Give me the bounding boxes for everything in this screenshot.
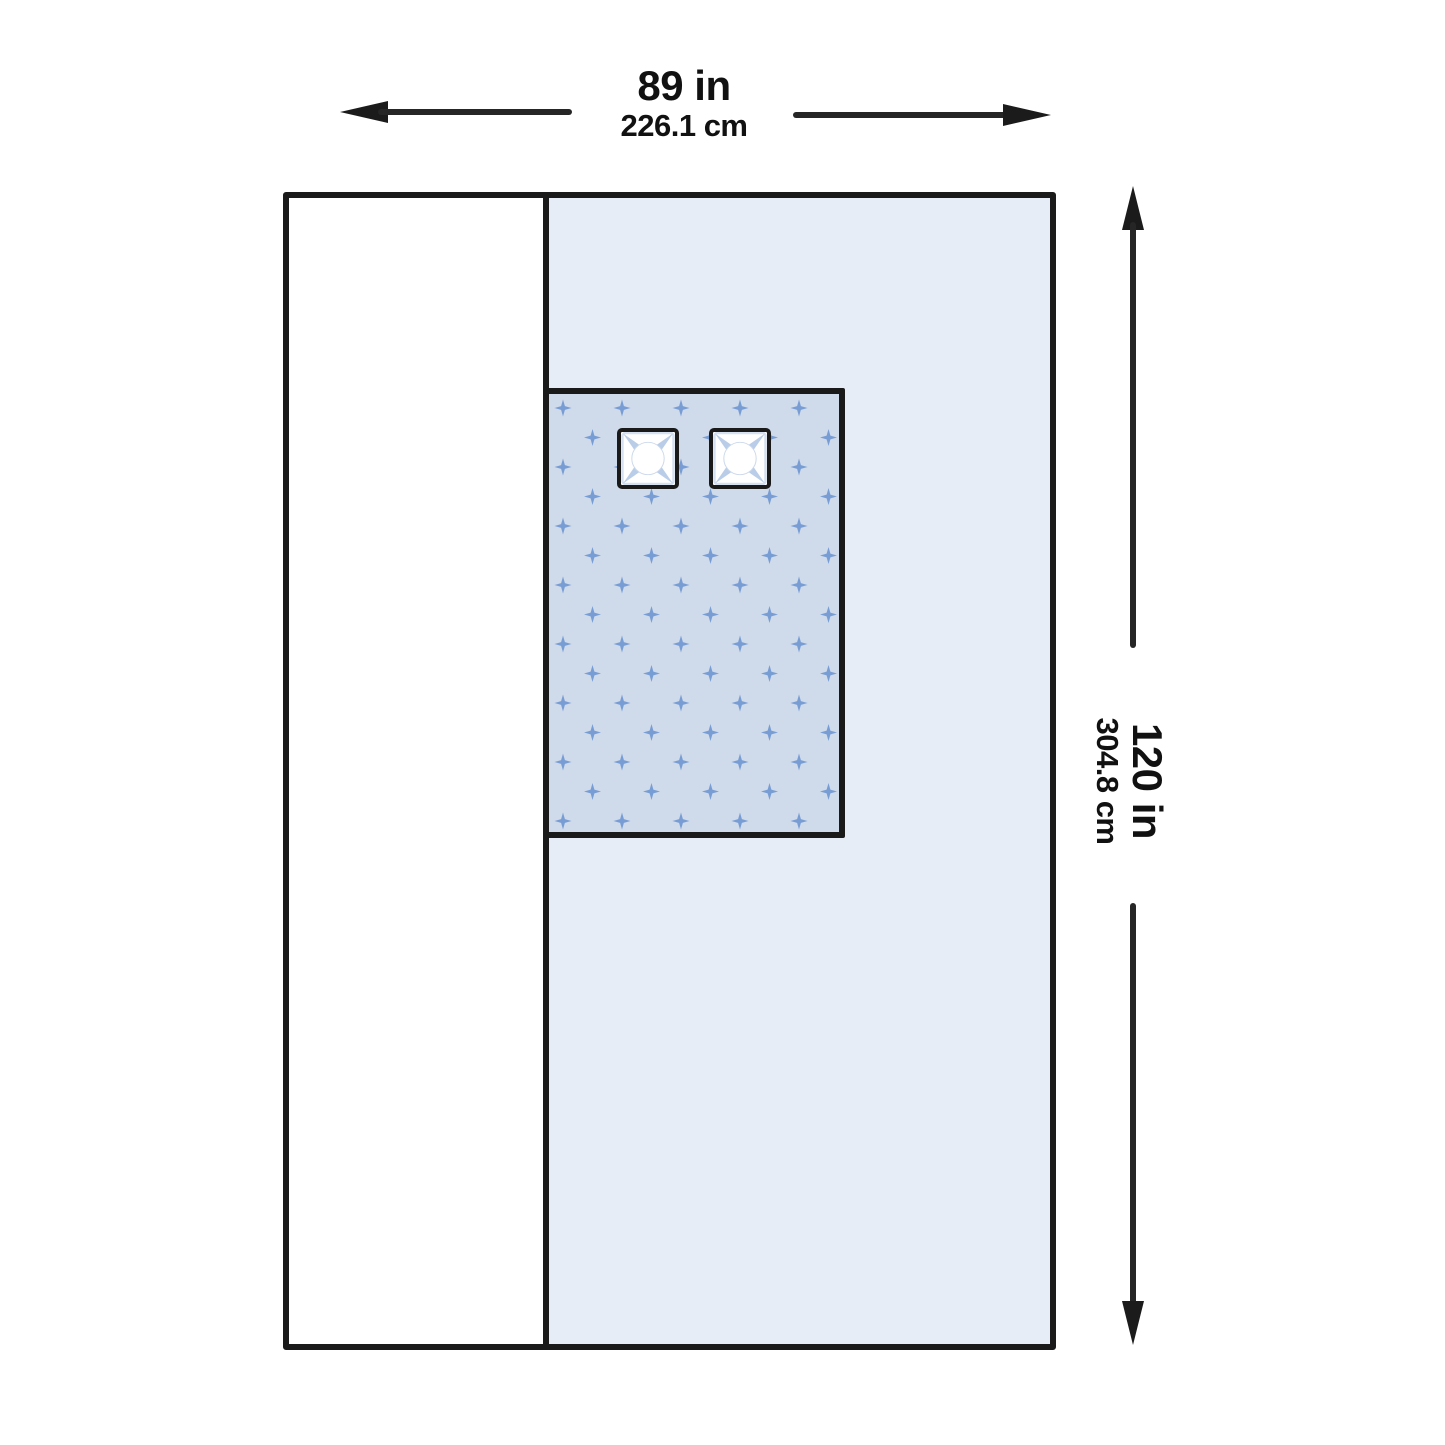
- fenestration-port-1: [617, 428, 679, 489]
- height-inches-value: 120 in: [1125, 696, 1169, 866]
- side-sheet-panel: [289, 198, 543, 1344]
- arrow-down-icon: [1121, 903, 1145, 1345]
- cross-pattern: [549, 394, 839, 832]
- width-dimension-label: 89 in 226.1 cm: [564, 64, 804, 143]
- arrow-left-icon: [340, 100, 572, 124]
- arrow-up-icon: [1121, 186, 1145, 648]
- height-cm-value: 304.8 cm: [1090, 696, 1123, 866]
- arrow-right-icon: [793, 103, 1051, 127]
- product-dimension-diagram: 89 in 226.1 cm: [0, 0, 1445, 1445]
- arrow-up-shaft: [1130, 222, 1136, 648]
- height-dimension-label: 120 in 304.8 cm: [1085, 696, 1169, 866]
- arrow-down-shaft: [1130, 903, 1136, 1309]
- port-star-icon: [713, 432, 767, 485]
- drape-outline: [283, 192, 1056, 1350]
- fenestration-port-2: [709, 428, 771, 489]
- port-star-icon: [621, 432, 675, 485]
- arrow-right-head: [1003, 104, 1051, 126]
- arrow-down-head: [1122, 1301, 1144, 1345]
- width-inches-value: 89 in: [564, 64, 804, 108]
- width-cm-value: 226.1 cm: [564, 110, 804, 143]
- reinforced-fenestration-panel: [543, 388, 845, 838]
- arrow-left-shaft: [378, 109, 572, 115]
- arrow-right-shaft: [793, 112, 1013, 118]
